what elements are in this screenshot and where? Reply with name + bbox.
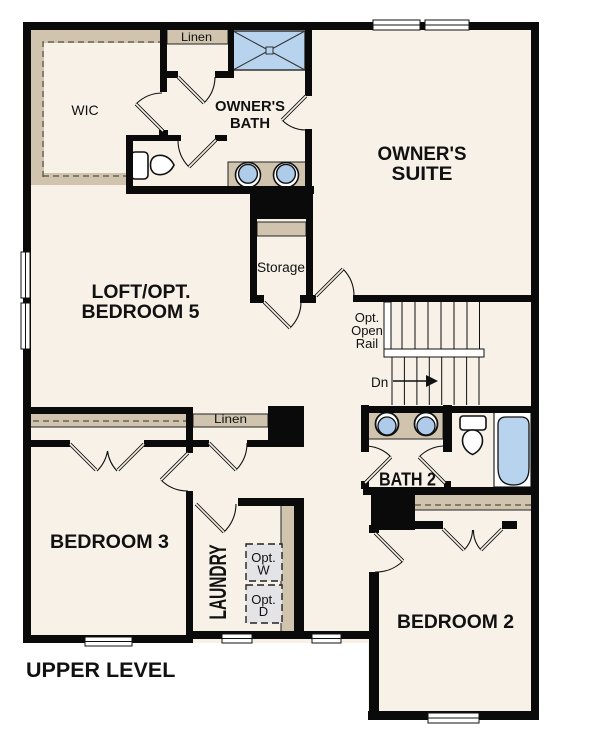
svg-text:W: W xyxy=(257,563,270,578)
svg-text:OWNER'S: OWNER'S xyxy=(378,143,467,165)
svg-text:OWNER'S: OWNER'S xyxy=(215,98,285,115)
svg-text:Linen: Linen xyxy=(214,412,247,426)
svg-text:UPPER LEVEL: UPPER LEVEL xyxy=(26,658,175,682)
svg-text:BEDROOM 5: BEDROOM 5 xyxy=(82,301,200,323)
svg-text:WIC: WIC xyxy=(71,102,98,118)
svg-text:Rail: Rail xyxy=(356,336,379,351)
svg-text:LOFT/OPT.: LOFT/OPT. xyxy=(92,281,191,303)
svg-text:Linen: Linen xyxy=(181,30,212,44)
svg-text:LAUNDRY: LAUNDRY xyxy=(205,545,232,620)
svg-text:SUITE: SUITE xyxy=(392,163,453,185)
svg-text:Dn: Dn xyxy=(371,375,388,390)
svg-text:BATH 2: BATH 2 xyxy=(379,470,436,490)
svg-text:BATH: BATH xyxy=(230,115,270,132)
svg-text:Storage: Storage xyxy=(257,260,305,275)
svg-text:D: D xyxy=(259,604,268,619)
svg-text:BEDROOM 3: BEDROOM 3 xyxy=(50,531,169,553)
svg-text:BEDROOM 2: BEDROOM 2 xyxy=(397,611,514,633)
